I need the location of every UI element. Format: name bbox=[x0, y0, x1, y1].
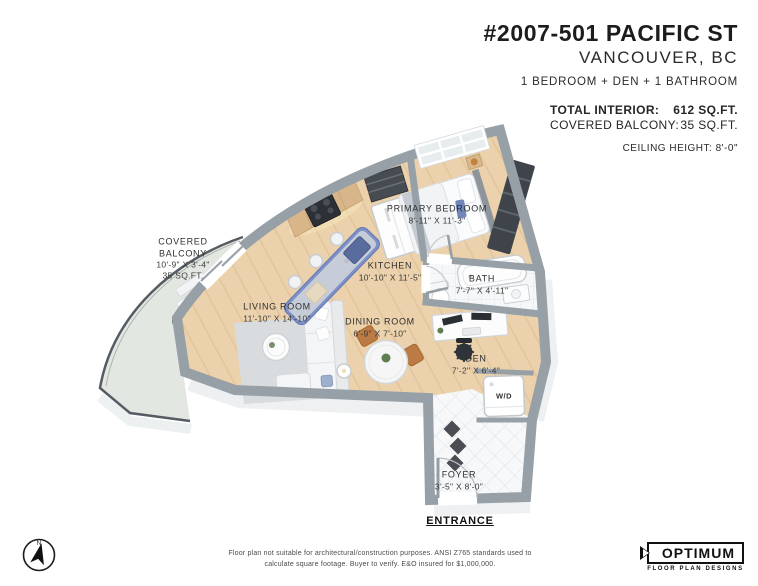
disclaimer: Floor plan not suitable for architectura… bbox=[170, 548, 590, 570]
page-subtitle: VANCOUVER, BC bbox=[484, 48, 738, 68]
floor-lamp bbox=[337, 364, 351, 378]
total-interior-row: TOTAL INTERIOR: 612 SQ.FT. bbox=[550, 103, 738, 118]
room-label-covered-balcony: COVERED BALCONY 10'-9" X 3'-4" 35 SQ.FT. bbox=[150, 236, 216, 281]
room-label-bath: BATH 7'-7" X 4'-11" bbox=[456, 274, 509, 297]
desk bbox=[432, 309, 508, 341]
disclaimer-line1: Floor plan not suitable for architectura… bbox=[228, 550, 531, 557]
room-label-den: DEN 7'-2" X 6'-4" bbox=[452, 354, 500, 377]
floor-plan-page: N #2007-501 PACIFIC ST VANCOUVER, BC 1 B… bbox=[0, 0, 758, 586]
total-interior-label: TOTAL INTERIOR: bbox=[550, 103, 659, 118]
washer-dryer-label: W/D bbox=[496, 392, 512, 401]
area-stats: TOTAL INTERIOR: 612 SQ.FT. COVERED BALCO… bbox=[550, 103, 738, 133]
covered-balcony-value: 35 SQ.FT. bbox=[680, 118, 738, 133]
room-label-primary-bedroom: PRIMARY BEDROOM 8'-11" X 11'-3" bbox=[387, 204, 487, 227]
page-title: #2007-501 PACIFIC ST bbox=[484, 21, 738, 45]
entrance-label: ENTRANCE bbox=[426, 515, 494, 527]
unit-configuration: 1 BEDROOM + DEN + 1 BATHROOM bbox=[484, 76, 738, 88]
covered-balcony-row: COVERED BALCONY: 35 SQ.FT. bbox=[550, 118, 738, 133]
table-centerpiece bbox=[382, 354, 391, 363]
room-label-kitchen: KITCHEN 10'-10" X 11'-5" bbox=[359, 261, 422, 284]
ceiling-height: CEILING HEIGHT: 8'-0" bbox=[484, 143, 738, 154]
entrance-door-opening bbox=[438, 498, 477, 499]
room-label-living-room: LIVING ROOM 11'-10" X 14'-10" bbox=[243, 302, 311, 325]
company-logo: OPTIMUM FLOOR PLAN DESIGNS bbox=[647, 542, 744, 572]
logo-tagline: FLOOR PLAN DESIGNS bbox=[647, 566, 744, 572]
header: #2007-501 PACIFIC ST VANCOUVER, BC 1 BED… bbox=[484, 21, 738, 154]
coffee-table bbox=[263, 334, 290, 361]
monitor bbox=[471, 313, 491, 320]
compass: N bbox=[24, 540, 55, 571]
disclaimer-line2: calculate square footage. Buyer to verif… bbox=[265, 561, 496, 568]
total-interior-value: 612 SQ.FT. bbox=[673, 103, 738, 118]
covered-balcony-label: COVERED BALCONY: bbox=[550, 118, 679, 133]
room-label-dining-room: DINING ROOM 6'-9" X 7'-10" bbox=[345, 317, 415, 340]
bedroom-door-opening bbox=[427, 258, 452, 260]
logo-wordmark: OPTIMUM bbox=[647, 542, 744, 564]
room-label-foyer: FOYER 3'-5" X 8'-0" bbox=[435, 470, 483, 493]
